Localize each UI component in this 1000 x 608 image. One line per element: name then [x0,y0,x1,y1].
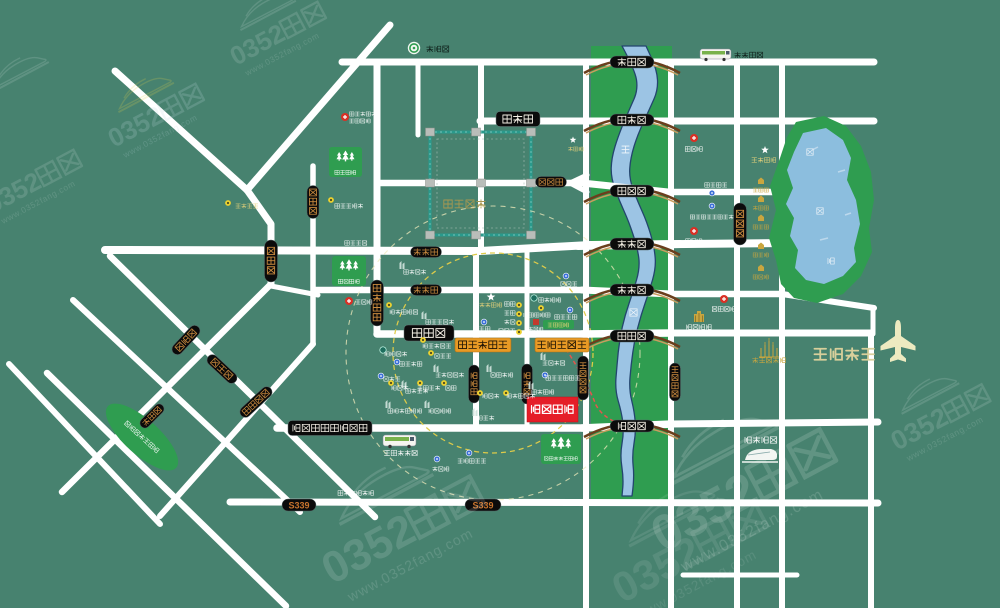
svg-text:S339: S339 [288,500,309,510]
